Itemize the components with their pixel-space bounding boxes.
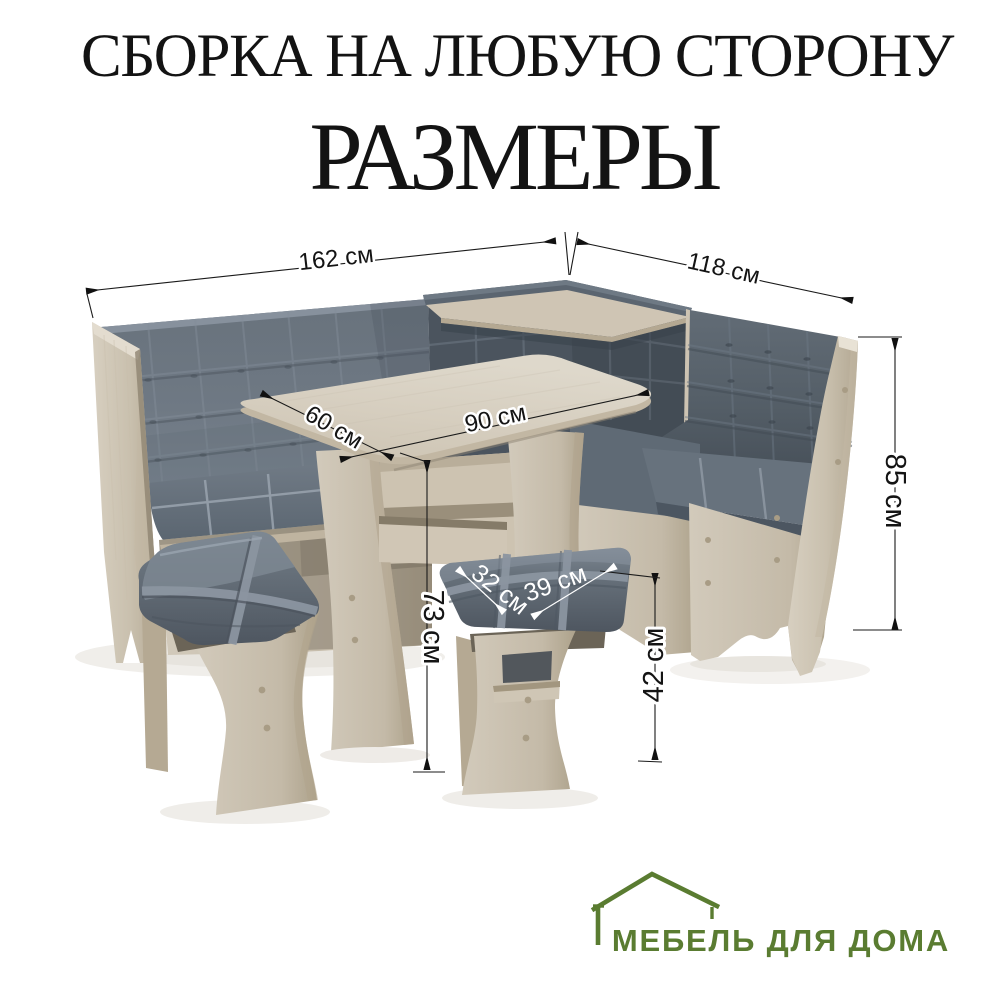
svg-text:42 см: 42 см [638,628,670,703]
svg-text:МЕБЕЛЬ ДЛЯ ДОМА: МЕБЕЛЬ ДЛЯ ДОМА [612,923,950,958]
svg-text:73 см: 73 см [417,590,449,665]
svg-text:СБОРКА НА ЛЮБУЮ СТОРОНУ: СБОРКА НА ЛЮБУЮ СТОРОНУ [81,23,955,90]
svg-text:85 см: 85 см [879,454,911,529]
svg-text:РАЗМЕРЫ: РАЗМЕРЫ [309,103,720,210]
